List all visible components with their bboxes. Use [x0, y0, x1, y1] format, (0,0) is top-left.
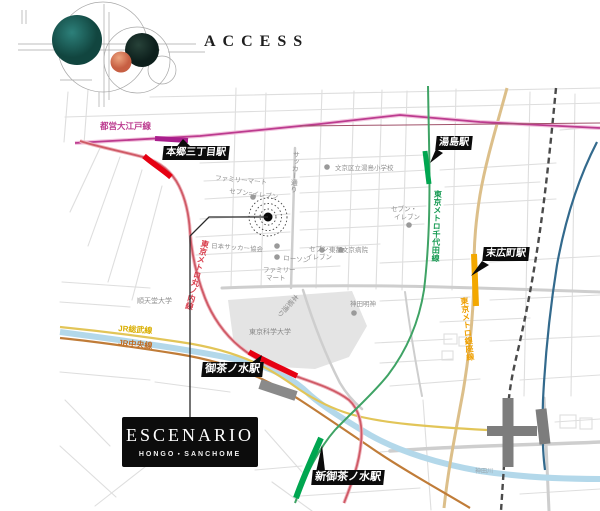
akihabara-station-platforms [487, 398, 545, 467]
juntendo-university-label: 順天堂大学 [137, 296, 172, 305]
brand-logo [18, 2, 205, 107]
jr-chuo-line-label: JR中央線 [118, 337, 153, 351]
football-association-label: 日本サッカー協会 [211, 241, 264, 254]
station-name: 御茶ノ水駅 [204, 363, 260, 375]
seven-eleven-hospital-label-l1: セブン- [309, 244, 331, 253]
oedo-line [75, 115, 600, 143]
property-name-plate: ESCENARIO HONGO・SANCHOME [122, 417, 258, 467]
property-subtitle: HONGO・SANCHOME [139, 449, 241, 459]
kanda-river-label: 神田川 [475, 467, 493, 475]
oedo-line-label: 都営大江戸線 [99, 121, 152, 131]
station-label-shin-ochanomizu: 新御茶ノ水駅 [311, 470, 385, 485]
yushima-elementary-label: 文京区立湯島小学校 [335, 163, 394, 172]
familymart-north-label: ファミリーマート [215, 174, 267, 187]
science-tokyo-university-label: 東京科学大学 [249, 327, 291, 336]
station-name: 新御茶ノ水駅 [314, 471, 381, 483]
station-label-suehirocho: 末広町駅 [482, 247, 529, 261]
familymart-south-label-l2: マート [266, 274, 286, 282]
station-label-hongo-sanchome: 本郷三丁目駅 [162, 146, 229, 160]
page-title: ACCESS [204, 33, 309, 51]
station-label-ochanomizu: 御茶ノ水駅 [201, 362, 264, 377]
chiyoda-line-label: 東京メトロ千代田線 [431, 189, 443, 263]
jr-ochanomizu-platform [260, 384, 296, 396]
soccer-street-label: サッカー通り [290, 151, 300, 194]
station-name: 本郷三丁目駅 [165, 147, 226, 158]
logo-salmon-circle [111, 52, 132, 73]
logo-teal-circle [52, 15, 102, 65]
ginza-suehirocho-marker [474, 254, 476, 306]
access-map-page: 都営大江戸線 東京メトロ丸ノ内線 東京メトロ千代田線 東京メトロ銀座線 JR総武… [0, 0, 600, 511]
seven-eleven-yushima-label-l1: セブン・ [391, 204, 417, 213]
logo-drafting-marks [18, 2, 205, 107]
station-name: 末広町駅 [485, 248, 526, 259]
station-name: 湯島駅 [438, 137, 469, 148]
tohto-bunkyo-hospital-label: 東都文京病院 [329, 245, 369, 254]
property-name: ESCENARIO [126, 425, 254, 446]
station-label-yushima: 湯島駅 [435, 136, 472, 150]
familymart-south-label-l1: ファミリー [263, 266, 296, 274]
kanda-myojin-label: 神田明神 [350, 299, 376, 308]
seven-eleven-yushima-label-l2: イレブン [394, 212, 420, 221]
